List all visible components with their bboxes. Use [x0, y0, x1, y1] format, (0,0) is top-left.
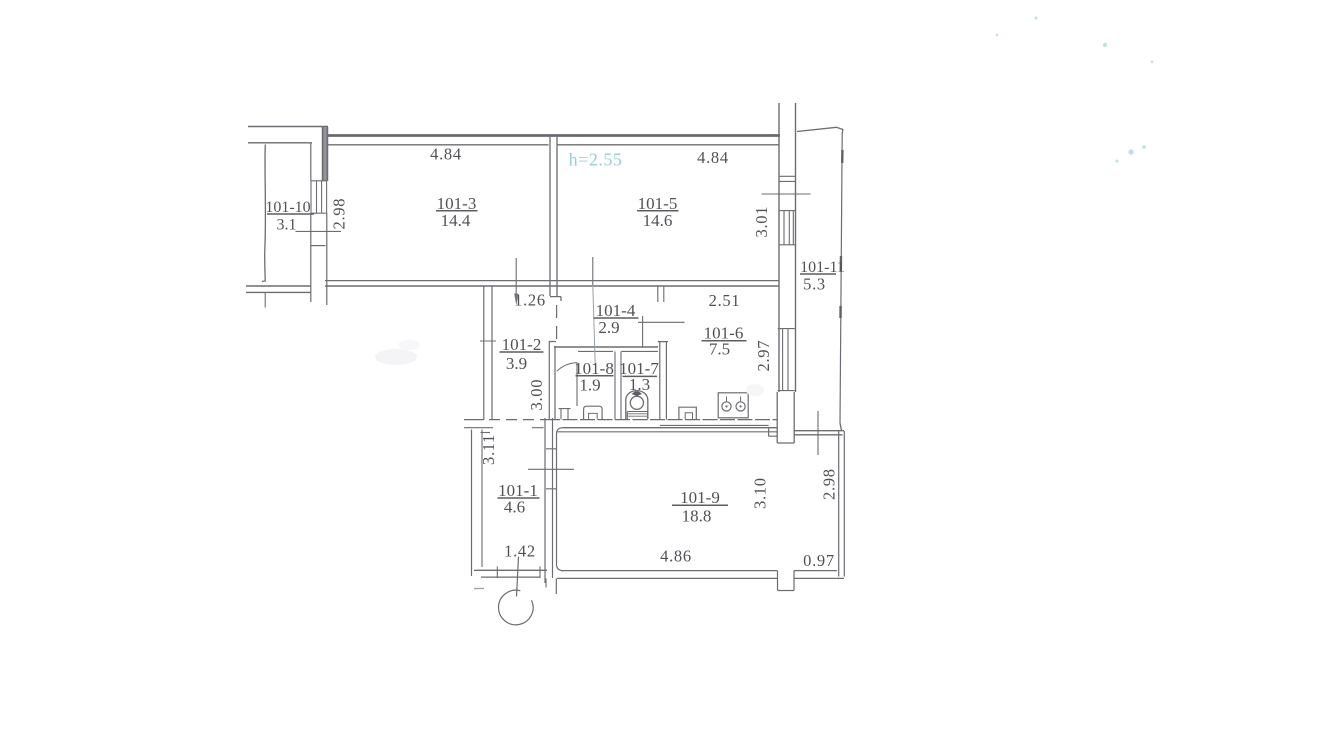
svg-text:14.4: 14.4 [441, 211, 471, 230]
svg-text:101-2: 101-2 [502, 335, 542, 354]
svg-text:2.98: 2.98 [820, 468, 839, 500]
svg-text:h=2.55: h=2.55 [569, 150, 623, 170]
svg-text:3.1: 3.1 [277, 216, 297, 233]
svg-text:2.97: 2.97 [754, 340, 773, 372]
svg-text:0.97: 0.97 [803, 551, 835, 570]
svg-text:2.9: 2.9 [598, 318, 619, 337]
svg-text:7.5: 7.5 [709, 340, 730, 359]
svg-text:14.6: 14.6 [643, 211, 673, 230]
svg-text:4.84: 4.84 [697, 148, 729, 167]
svg-text:1.42: 1.42 [504, 541, 536, 560]
svg-text:5.3: 5.3 [803, 275, 826, 294]
svg-text:3.01: 3.01 [752, 206, 771, 238]
svg-text:101-9: 101-9 [680, 488, 720, 507]
svg-text:3.11: 3.11 [479, 434, 498, 465]
svg-text:1.3: 1.3 [629, 375, 650, 394]
svg-text:1.26: 1.26 [514, 290, 546, 309]
svg-text:18.8: 18.8 [682, 507, 712, 526]
svg-text:4.6: 4.6 [504, 498, 525, 517]
svg-text:4.84: 4.84 [430, 145, 462, 164]
svg-text:2.98: 2.98 [330, 198, 349, 230]
svg-text:3.10: 3.10 [751, 477, 770, 509]
svg-text:3.9: 3.9 [506, 354, 527, 373]
svg-text:2.51: 2.51 [709, 291, 741, 310]
svg-text:3.00: 3.00 [527, 379, 546, 411]
svg-text:4.86: 4.86 [660, 547, 692, 566]
svg-text:1.9: 1.9 [579, 376, 600, 395]
